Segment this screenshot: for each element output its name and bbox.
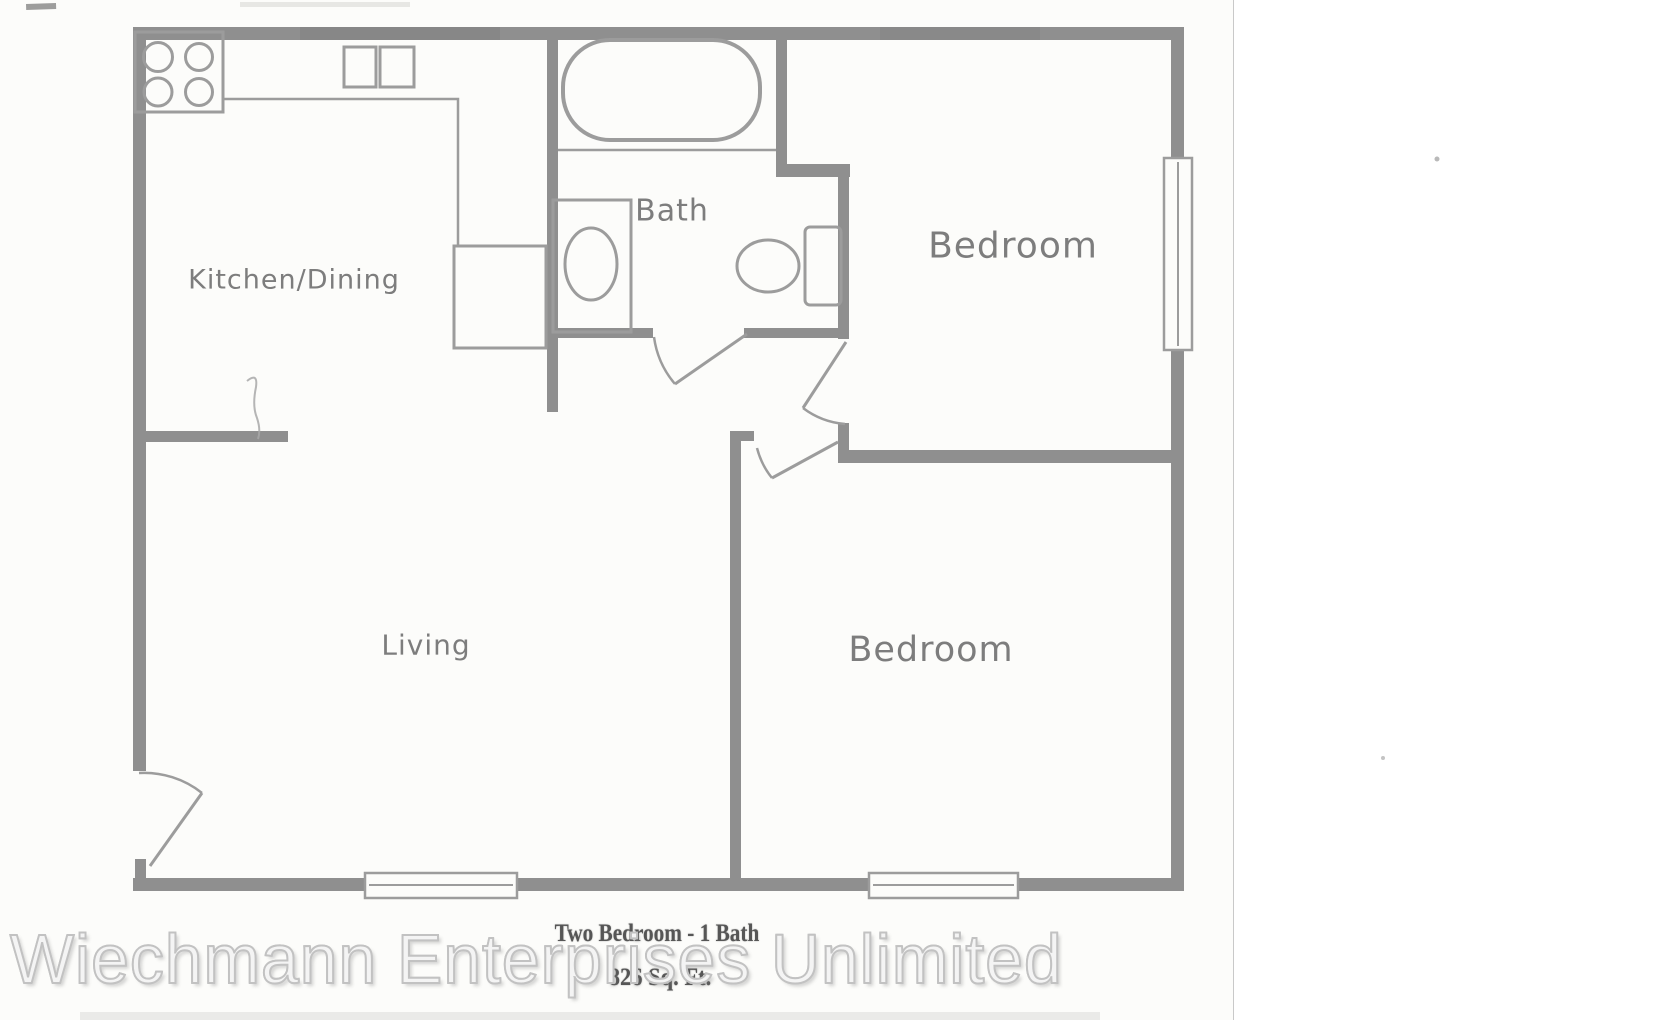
room-label-kitchen-dining: Kitchen/Dining (188, 265, 400, 296)
refrigerator-icon (454, 246, 546, 348)
window-icon (365, 873, 517, 898)
room-label-bath: Bath (635, 194, 709, 229)
bedroom-top-door-swing (803, 342, 846, 424)
room-label-bedroom-top: Bedroom (928, 226, 1098, 267)
window-icon (1164, 158, 1192, 350)
toilet-icon (737, 227, 841, 305)
kitchen-sink-icon (344, 47, 414, 87)
vanity-sink-icon (553, 200, 631, 332)
bath-door-swing (654, 334, 747, 384)
kitchen-counter (222, 99, 458, 246)
interior-walls (140, 31, 1172, 884)
room-label-living: Living (381, 629, 470, 662)
bathtub-icon (563, 40, 760, 140)
bedroom-bottom-door-swing (757, 442, 838, 478)
floor-plan-drawing (0, 0, 1680, 1020)
watermark-text: Wiechmann Enterprises Unlimited (10, 924, 1063, 994)
room-label-bedroom-bottom: Bedroom (848, 630, 1013, 670)
entry-door-swing (139, 773, 202, 866)
stove-icon (135, 32, 223, 112)
window-icon (869, 873, 1018, 898)
